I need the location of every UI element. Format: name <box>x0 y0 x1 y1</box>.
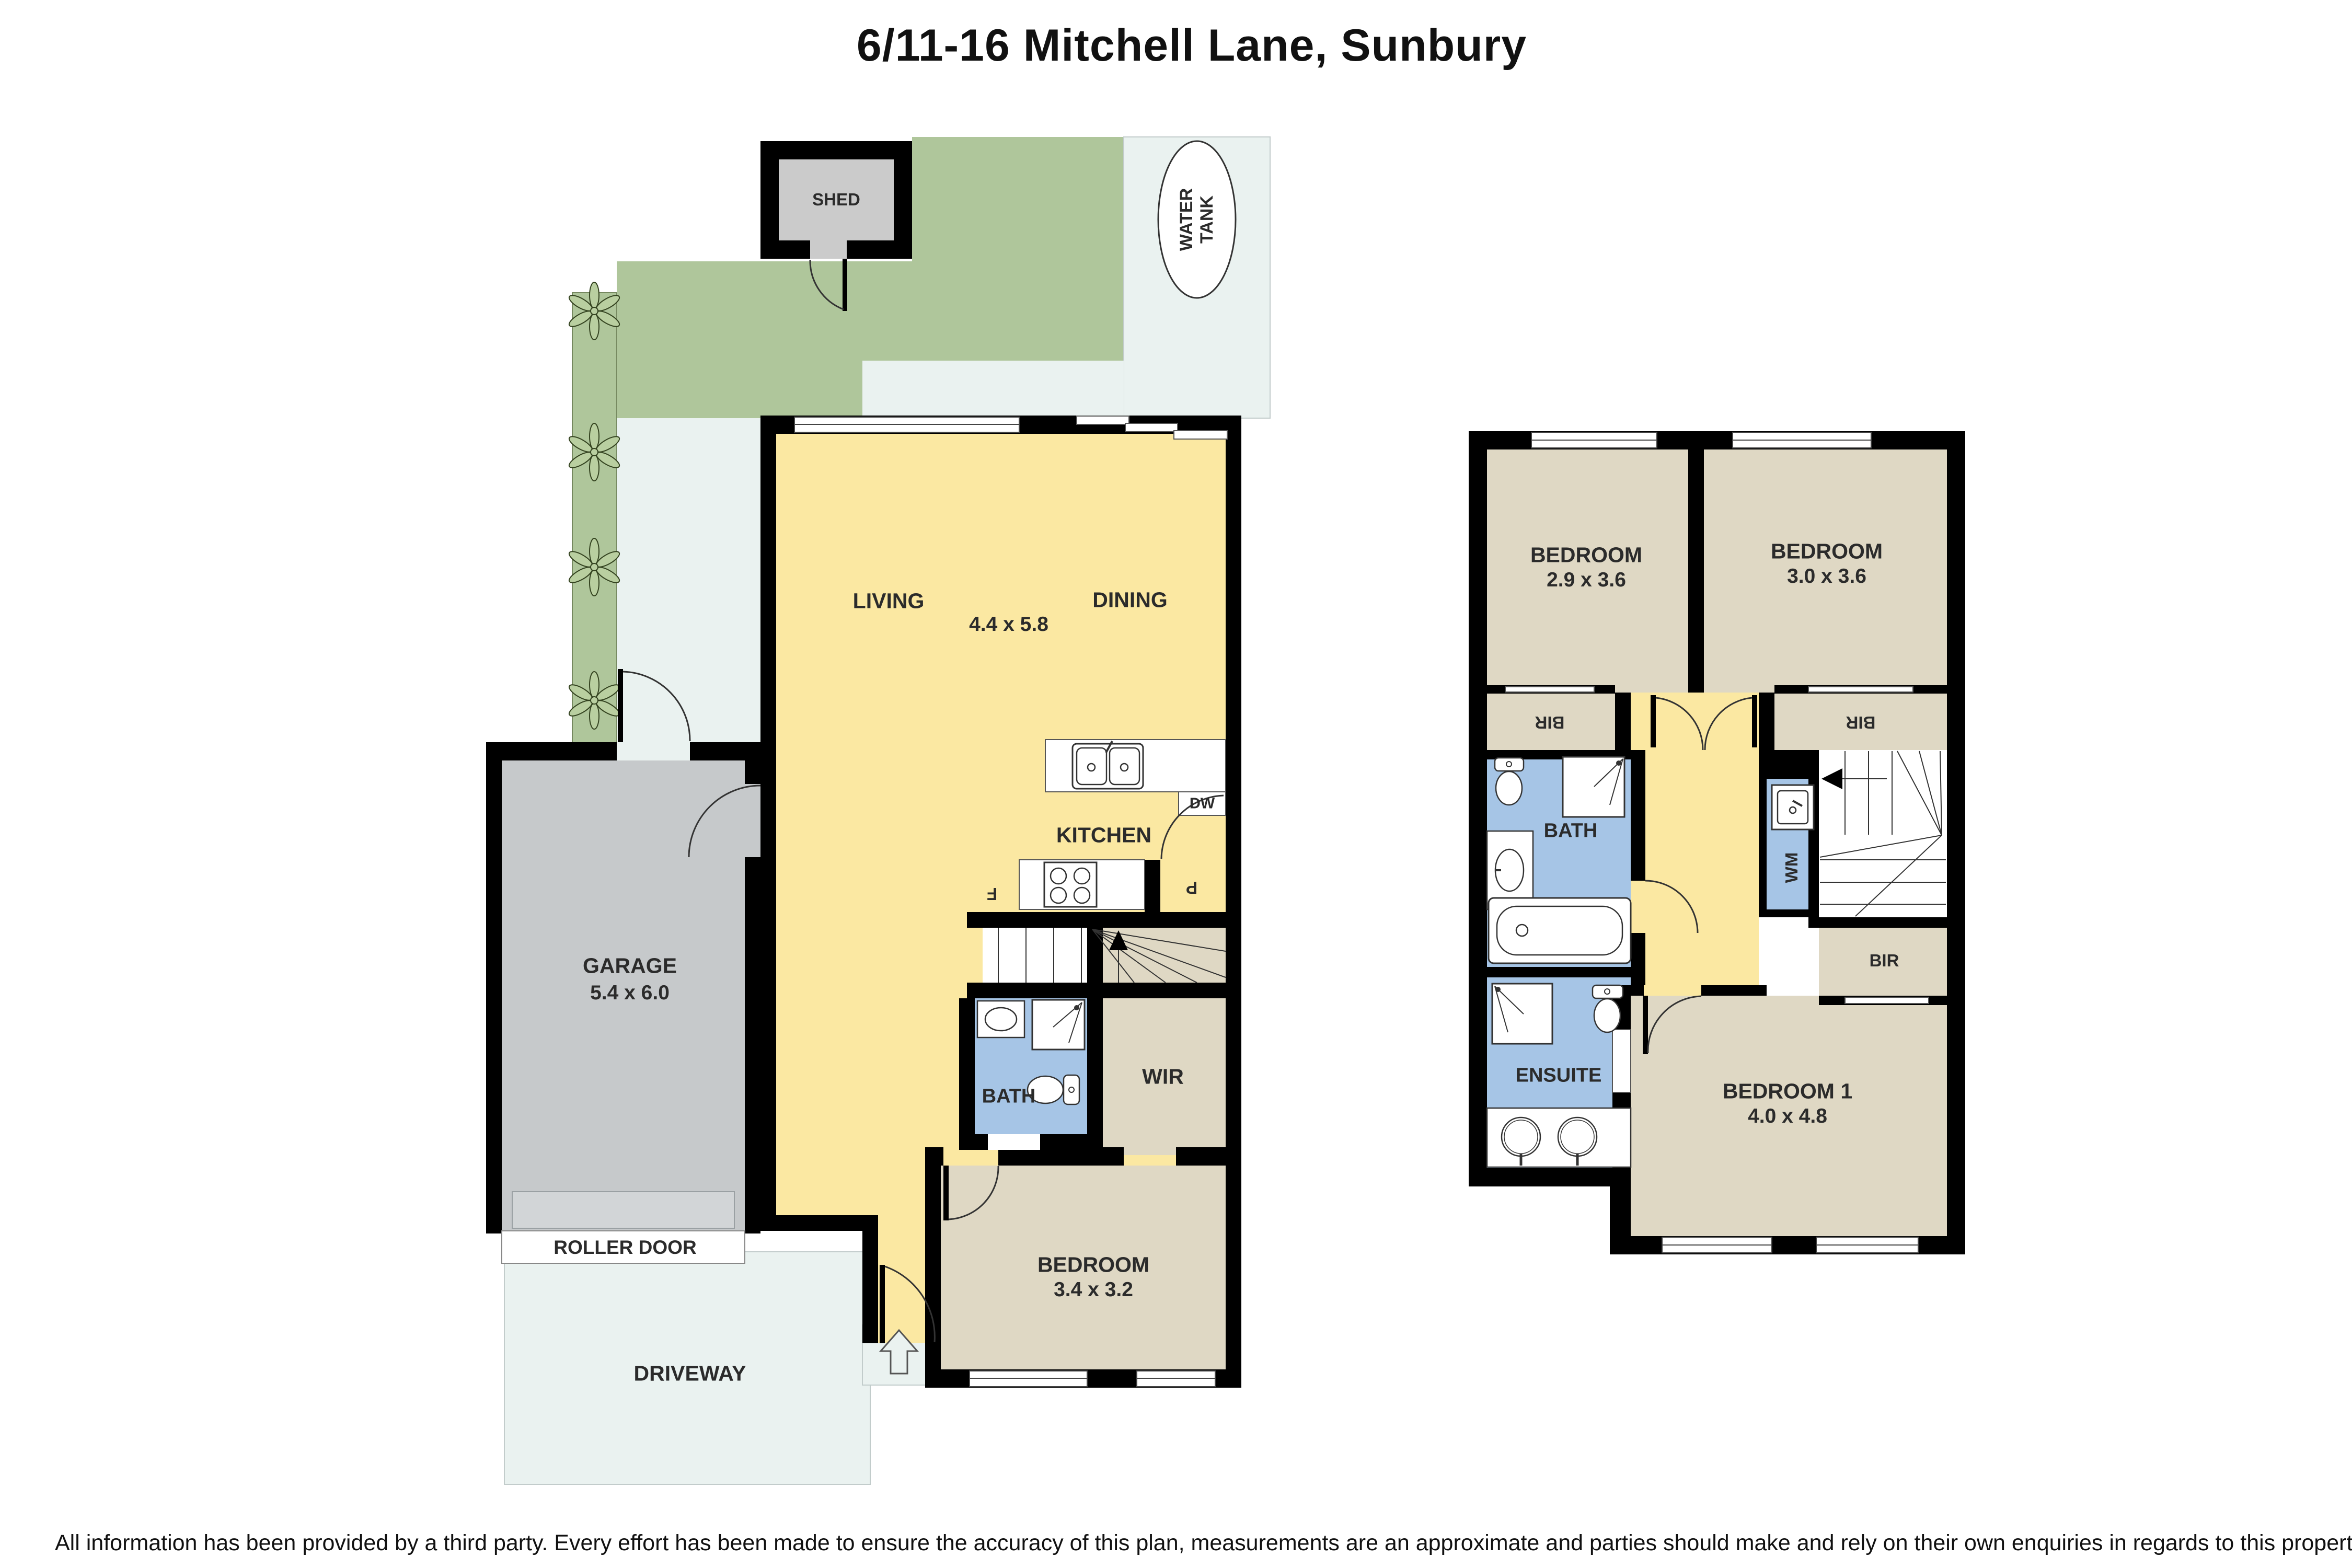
bir-left-label: BIR <box>1535 712 1565 732</box>
ground-floor-drawing <box>470 125 1286 1495</box>
bath-label: BATH <box>982 1086 1036 1108</box>
double-vanity-icon <box>1487 1108 1631 1167</box>
dining-label: DINING <box>1092 588 1168 613</box>
roller-door-label: ROLLER DOOR <box>554 1237 696 1259</box>
shower-icon <box>1492 984 1552 1044</box>
upper-floor-drawing <box>1443 413 1997 1275</box>
bedroom-left-dims: 2.9 x 3.6 <box>1547 569 1626 592</box>
bedroom-label: BEDROOM <box>1037 1253 1149 1277</box>
upper-floor-plan: BEDROOM 2.9 x 3.6 BEDROOM 3.0 x 3.6 BIR … <box>1443 413 1997 1275</box>
garage-side-door-leaf <box>618 669 623 742</box>
bedroom-right-label: BEDROOM <box>1771 539 1883 564</box>
kitchen-island <box>1045 740 1226 792</box>
basin-icon <box>985 1008 1017 1031</box>
wm-label: WM <box>1782 852 1802 883</box>
living-dining-dims: 4.4 x 5.8 <box>969 613 1048 636</box>
fridge-label: F <box>987 884 997 904</box>
toilet-icon <box>1495 758 1524 805</box>
shed-label: SHED <box>812 190 860 210</box>
upper-hall-floor <box>1631 693 1759 996</box>
living-label: LIVING <box>853 589 925 614</box>
disclaimer-text: All information has been provided by a t… <box>55 1530 2344 1556</box>
garage-label: GARAGE <box>583 954 677 978</box>
bir-right-label: BIR <box>1846 712 1876 732</box>
bedroom-left-label: BEDROOM <box>1530 543 1642 568</box>
garage-structure <box>486 669 760 1233</box>
bath-door-opening <box>988 1134 1040 1150</box>
shed-door-leaf <box>843 259 847 311</box>
double-sink-icon <box>1073 741 1143 789</box>
ensuite-opening <box>1612 1030 1631 1092</box>
page-title: 6/11-16 Mitchell Lane, Sunbury <box>0 20 2352 72</box>
pantry-label: P <box>1186 878 1197 897</box>
water-tank-label: WATER TANK <box>1177 165 1217 274</box>
ground-floor-plan: SHED WATER TANK LIVING DINING 4.4 x 5.8 … <box>470 125 1286 1495</box>
floorplan-canvas: 6/11-16 Mitchell Lane, Sunbury <box>0 0 2352 1568</box>
ensuite-label: ENSUITE <box>1516 1065 1602 1087</box>
toilet-icon <box>1593 985 1623 1032</box>
bedroom-right-dims: 3.0 x 3.6 <box>1787 565 1866 588</box>
driveway-label: DRIVEWAY <box>634 1362 746 1386</box>
bedroom1-label: BEDROOM 1 <box>1723 1079 1852 1104</box>
kitchen-label: KITCHEN <box>1056 823 1151 848</box>
bir-stairs-label: BIR <box>1870 951 1899 971</box>
garage-dims: 5.4 x 6.0 <box>590 982 670 1005</box>
bedroom1-dims: 4.0 x 4.8 <box>1748 1105 1827 1128</box>
bedroom-dims: 3.4 x 3.2 <box>1054 1278 1133 1301</box>
shower-icon <box>1563 757 1624 817</box>
dishwasher-label: DW <box>1190 795 1215 813</box>
bathtub-icon <box>1489 898 1631 963</box>
upper-bath-label: BATH <box>1544 820 1598 843</box>
stove-icon <box>1019 860 1145 909</box>
wir-label: WIR <box>1142 1065 1184 1089</box>
washing-machine-icon <box>1772 785 1814 829</box>
